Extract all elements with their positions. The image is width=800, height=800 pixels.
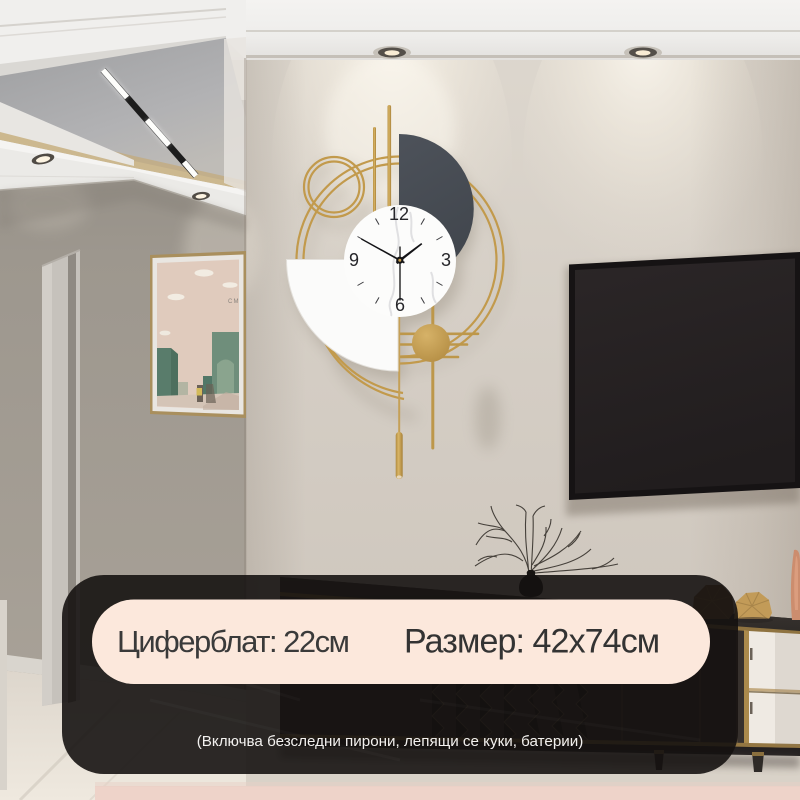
svg-text:3: 3 [441,250,451,270]
svg-text:CM: CM [228,299,240,305]
svg-text:9: 9 [349,250,359,270]
svg-text:Циферблат: 22см: Циферблат: 22см [117,624,349,659]
svg-text:Размер: 42х74см: Размер: 42х74см [404,623,659,661]
svg-text:12: 12 [389,204,409,224]
svg-text:(Включва безследни пирони, леп: (Включва безследни пирони, лепящи се кук… [197,733,584,750]
